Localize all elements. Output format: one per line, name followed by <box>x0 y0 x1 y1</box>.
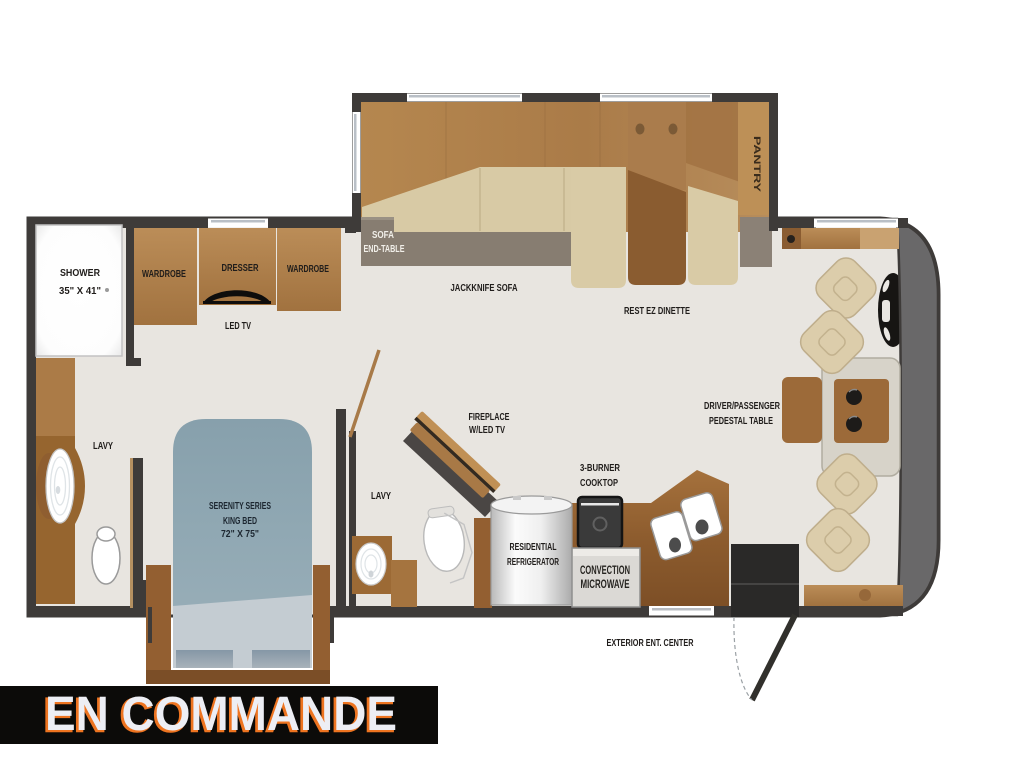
svg-text:3-BURNER: 3-BURNER <box>580 462 620 474</box>
svg-text:WARDROBE: WARDROBE <box>287 263 329 275</box>
svg-text:EN COMMANDE: EN COMMANDE <box>45 688 397 741</box>
svg-text:LED TV: LED TV <box>225 320 251 332</box>
svg-text:RESIDENTIAL: RESIDENTIAL <box>510 542 557 553</box>
svg-text:DRESSER: DRESSER <box>222 262 259 274</box>
svg-text:EXTERIOR ENT. CENTER: EXTERIOR ENT. CENTER <box>607 637 694 649</box>
svg-text:KING BED: KING BED <box>223 516 257 527</box>
svg-text:CONVECTION: CONVECTION <box>580 563 630 577</box>
svg-text:LAVY: LAVY <box>93 440 113 452</box>
svg-text:LAVY: LAVY <box>371 490 391 502</box>
svg-text:72" X 75": 72" X 75" <box>221 529 259 540</box>
svg-text:SHOWER: SHOWER <box>60 267 100 279</box>
svg-text:COOKTOP: COOKTOP <box>580 477 618 489</box>
svg-text:PANTRY: PANTRY <box>751 136 762 193</box>
svg-text:FIREPLACE: FIREPLACE <box>469 411 510 423</box>
svg-text:W/LED TV: W/LED TV <box>469 424 505 436</box>
svg-text:PEDESTAL TABLE: PEDESTAL TABLE <box>709 415 773 427</box>
svg-text:END-TABLE: END-TABLE <box>364 243 405 255</box>
svg-text:35" X 41": 35" X 41" <box>59 285 101 297</box>
svg-text:DRIVER/PASSENGER: DRIVER/PASSENGER <box>704 400 780 412</box>
svg-text:MICROWAVE: MICROWAVE <box>581 577 630 591</box>
svg-text:JACKKNIFE SOFA: JACKKNIFE SOFA <box>451 282 518 294</box>
svg-text:SERENITY SERIES: SERENITY SERIES <box>209 501 271 512</box>
svg-text:REFRIGERATOR: REFRIGERATOR <box>507 557 560 568</box>
svg-text:SOFA: SOFA <box>372 229 394 241</box>
svg-text:REST EZ DINETTE: REST EZ DINETTE <box>624 305 690 317</box>
svg-text:WARDROBE: WARDROBE <box>142 268 186 280</box>
